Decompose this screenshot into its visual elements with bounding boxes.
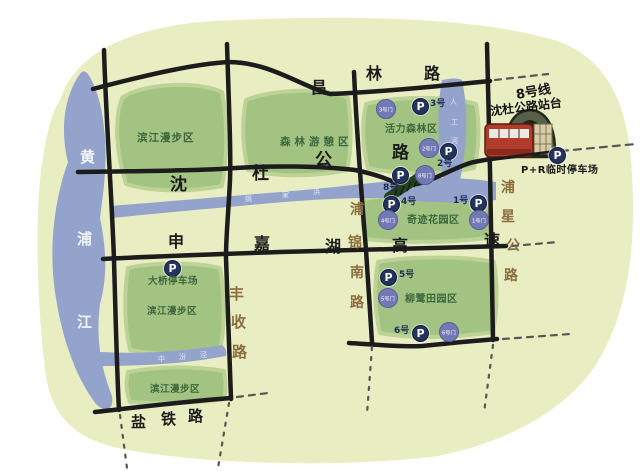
parking-icon-8: P	[392, 167, 409, 184]
creek-name-char: 家	[282, 192, 289, 199]
gate-label: 2号门	[422, 144, 436, 152]
road-label-shenjiahu: 申	[168, 234, 184, 250]
parking-icon-6: P	[412, 325, 429, 342]
road-label-puxing: 星	[501, 210, 515, 224]
road-label-shendu: 公	[315, 152, 332, 169]
park-map: 黄 浦 江 姚 家 浜 人 工 河 中 汾 泾 昌 林 路 沈 杜 公 路 申 …	[0, 0, 640, 471]
parking-label-1: 1号	[453, 197, 468, 206]
gate-marker-3: 3号门	[376, 99, 396, 119]
road-label-yantie: 盐	[131, 415, 146, 430]
p-glyph: P	[384, 271, 392, 284]
parking-icon-2: P	[440, 143, 457, 160]
road-label-puxing: 公	[506, 239, 520, 253]
parking-label-8: 8号	[383, 184, 398, 193]
gate-label: 4号门	[381, 216, 395, 224]
road-label-changlin: 昌	[311, 80, 327, 96]
road-label-fengshou: 丰	[229, 287, 244, 302]
road-label-puxing: 浦	[501, 181, 515, 195]
road-label-shenjiahu: 嘉	[254, 236, 270, 252]
branch-creek-name-char: 汾	[179, 354, 186, 361]
bridge-parking-label: 大桥停车场	[148, 277, 198, 287]
branch-creek-name-char: 中	[158, 356, 165, 363]
road-label-pujinnan: 锦	[348, 236, 362, 250]
park-and-ride-label: P+R临时停车场	[521, 166, 598, 176]
parking-label-3: 3号	[430, 100, 445, 109]
zone-label-binjiang-south: 滨江漫步区	[150, 385, 200, 395]
road-label-changlin: 路	[424, 66, 440, 82]
p-glyph: P	[474, 197, 482, 210]
road-label-pujinnan: 浦	[350, 203, 364, 217]
parking-label-4: 4号	[401, 198, 416, 207]
gate-marker-2: 2号门	[419, 138, 439, 158]
parking-icon-park-and-ride: P	[549, 147, 566, 164]
road-label-shendu: 杜	[252, 166, 269, 183]
road-label-puxing: 路	[504, 269, 518, 283]
zone-label-miracle-garden: 奇迹花园区	[407, 216, 460, 226]
gate-marker-5: 5号门	[378, 288, 398, 308]
zone-label-vitality-forest: 活力森林区	[385, 125, 438, 135]
map-canvas	[0, 0, 640, 471]
road-label-yantie: 铁	[161, 412, 176, 427]
gate-marker-6: 6号门	[439, 322, 459, 342]
road-label-shenjiahu: 高	[392, 238, 408, 254]
gate-label: 8号门	[418, 171, 432, 179]
branch-creek-name-char: 泾	[200, 352, 207, 359]
creek-name-char: 姚	[245, 196, 252, 203]
road-label-shendu: 沈	[170, 177, 187, 194]
road-label-fengshou: 路	[232, 345, 247, 360]
gate-marker-8: 8号门	[415, 165, 435, 185]
parking-icon-5: P	[380, 269, 397, 286]
road-label-shenjiahu: 速	[484, 233, 500, 249]
parking-label-2: 2号	[437, 160, 452, 169]
p-glyph: P	[553, 149, 561, 162]
road-label-pujinnan: 南	[350, 266, 364, 280]
road-label-shenjiahu: 湖	[325, 239, 341, 255]
river-name-char: 浦	[77, 232, 92, 247]
gate-label: 1号门	[472, 216, 486, 224]
parking-icon-3: P	[412, 98, 429, 115]
canal-name-char: 人	[450, 99, 457, 106]
river-name-char: 黄	[80, 150, 95, 165]
p-glyph: P	[416, 100, 424, 113]
zone-label-forest-recreation: 森林游憩区	[280, 137, 353, 148]
zone-forest-recreation-shape	[243, 91, 350, 176]
road-label-pujinnan: 路	[350, 296, 364, 310]
gate-marker-1: 1号门	[469, 210, 489, 230]
gate-label: 3号门	[379, 105, 393, 113]
gate-label: 5号门	[381, 294, 395, 302]
road-label-fengshou: 收	[231, 315, 246, 330]
parking-label-6: 6号	[394, 327, 409, 336]
p-glyph: P	[416, 327, 424, 340]
p-glyph: P	[168, 262, 176, 275]
river-name-char: 江	[77, 315, 92, 330]
zone-label-willow-field: 柳鹭田园区	[405, 295, 458, 305]
zone-label-binjiang-north: 滨江漫步区	[137, 133, 195, 144]
canal-name-char: 工	[451, 119, 458, 126]
road-label-shendu: 路	[392, 145, 409, 162]
zone-label-binjiang-mid: 滨江漫步区	[147, 307, 197, 317]
p-glyph: P	[444, 145, 452, 158]
creek-name-char: 浜	[313, 189, 320, 196]
gate-label: 6号门	[442, 328, 456, 336]
gate-marker-4: 4号门	[378, 210, 398, 230]
parking-icon-bridge-lot: P	[164, 260, 181, 277]
p-glyph: P	[396, 169, 404, 182]
parking-label-5: 5号	[399, 271, 414, 280]
road-label-yantie: 路	[188, 409, 203, 424]
road-label-changlin: 林	[366, 66, 382, 82]
